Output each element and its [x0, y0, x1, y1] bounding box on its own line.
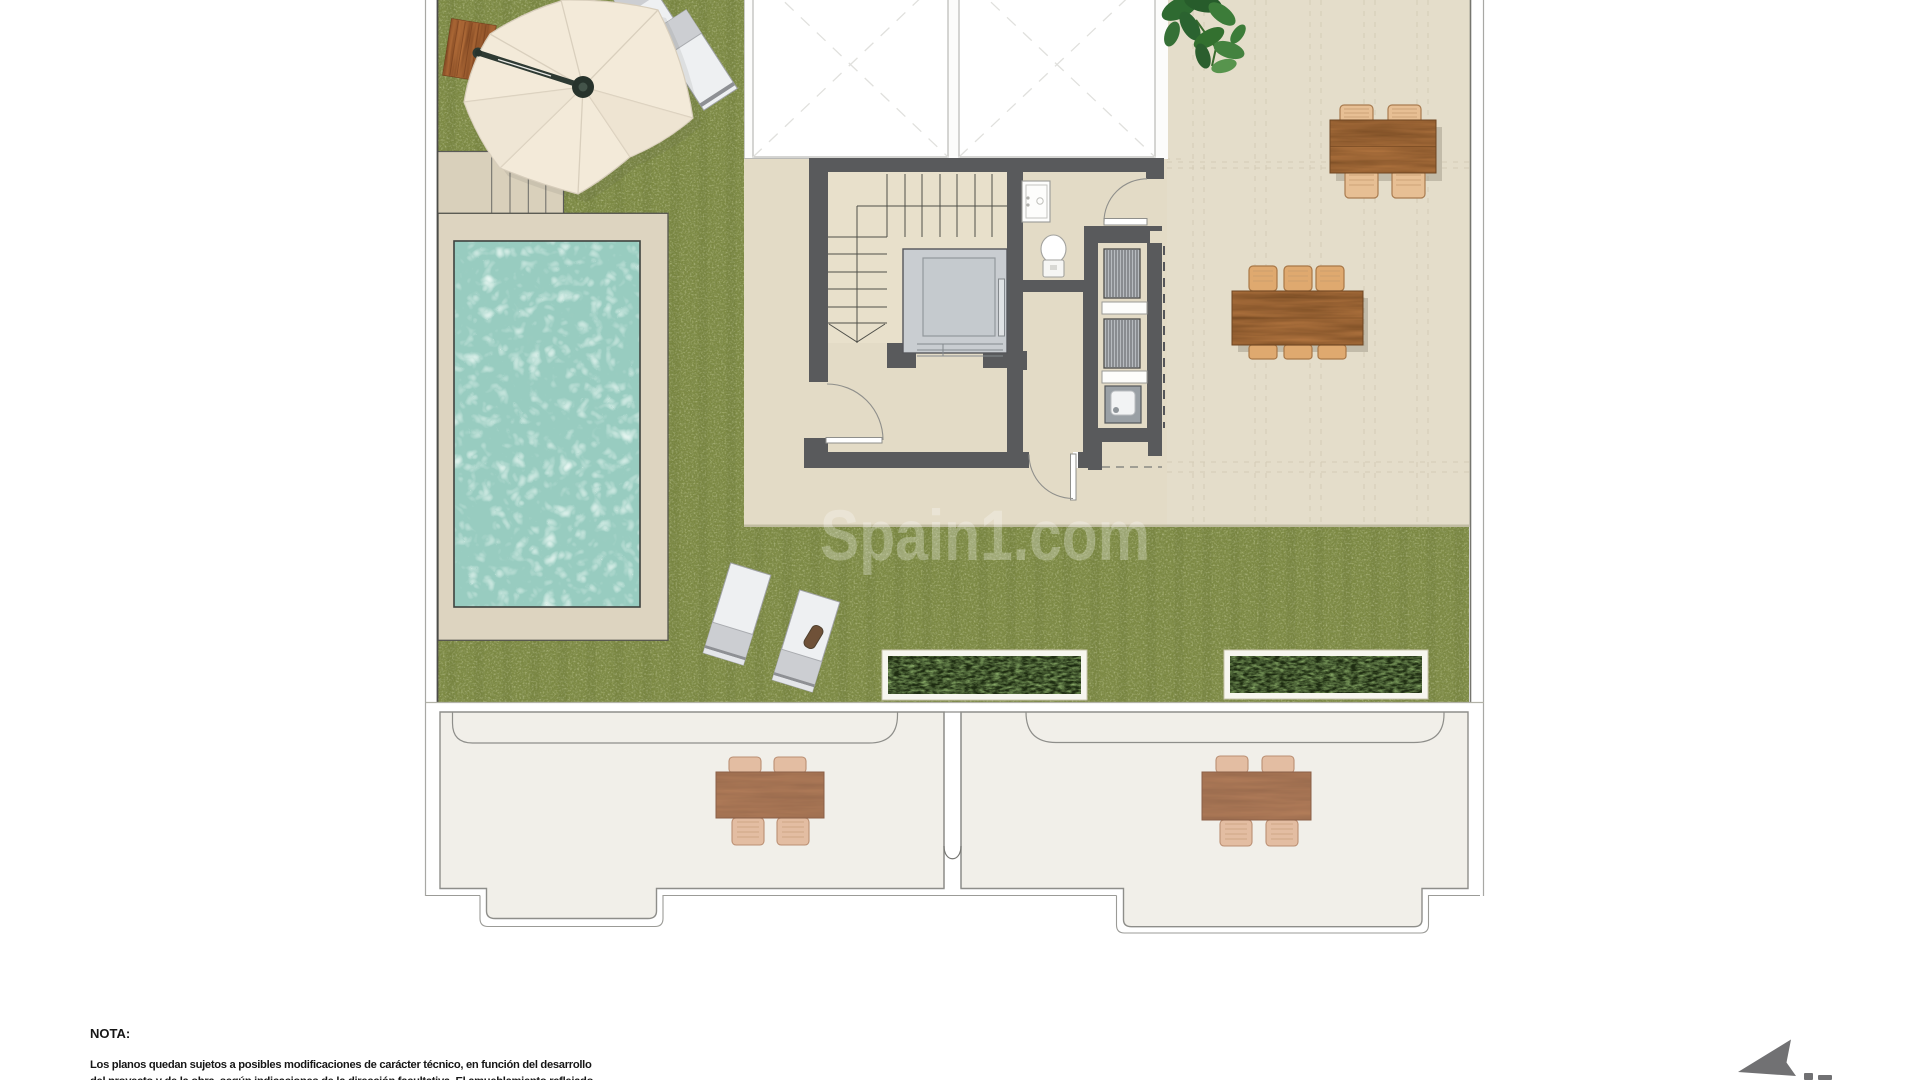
svg-text:Los planos quedan sujetos a po: Los planos quedan sujetos a posibles mod…: [90, 1059, 592, 1071]
svg-text:del proyecto y de la obra, seg: del proyecto y de la obra, según indicac…: [90, 1076, 594, 1080]
svg-text:Spain1.com: Spain1.com: [820, 497, 1150, 576]
svg-text:NOTA:: NOTA:: [90, 1026, 130, 1041]
